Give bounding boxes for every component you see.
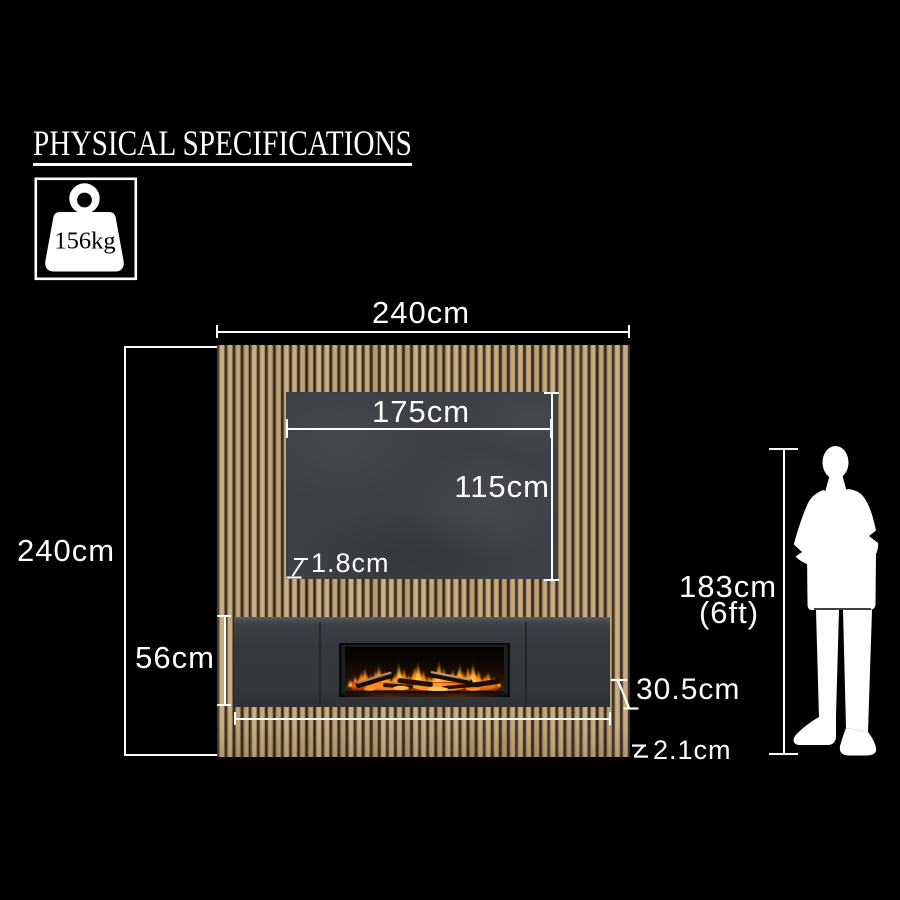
svg-text:156kg: 156kg	[54, 228, 115, 255]
